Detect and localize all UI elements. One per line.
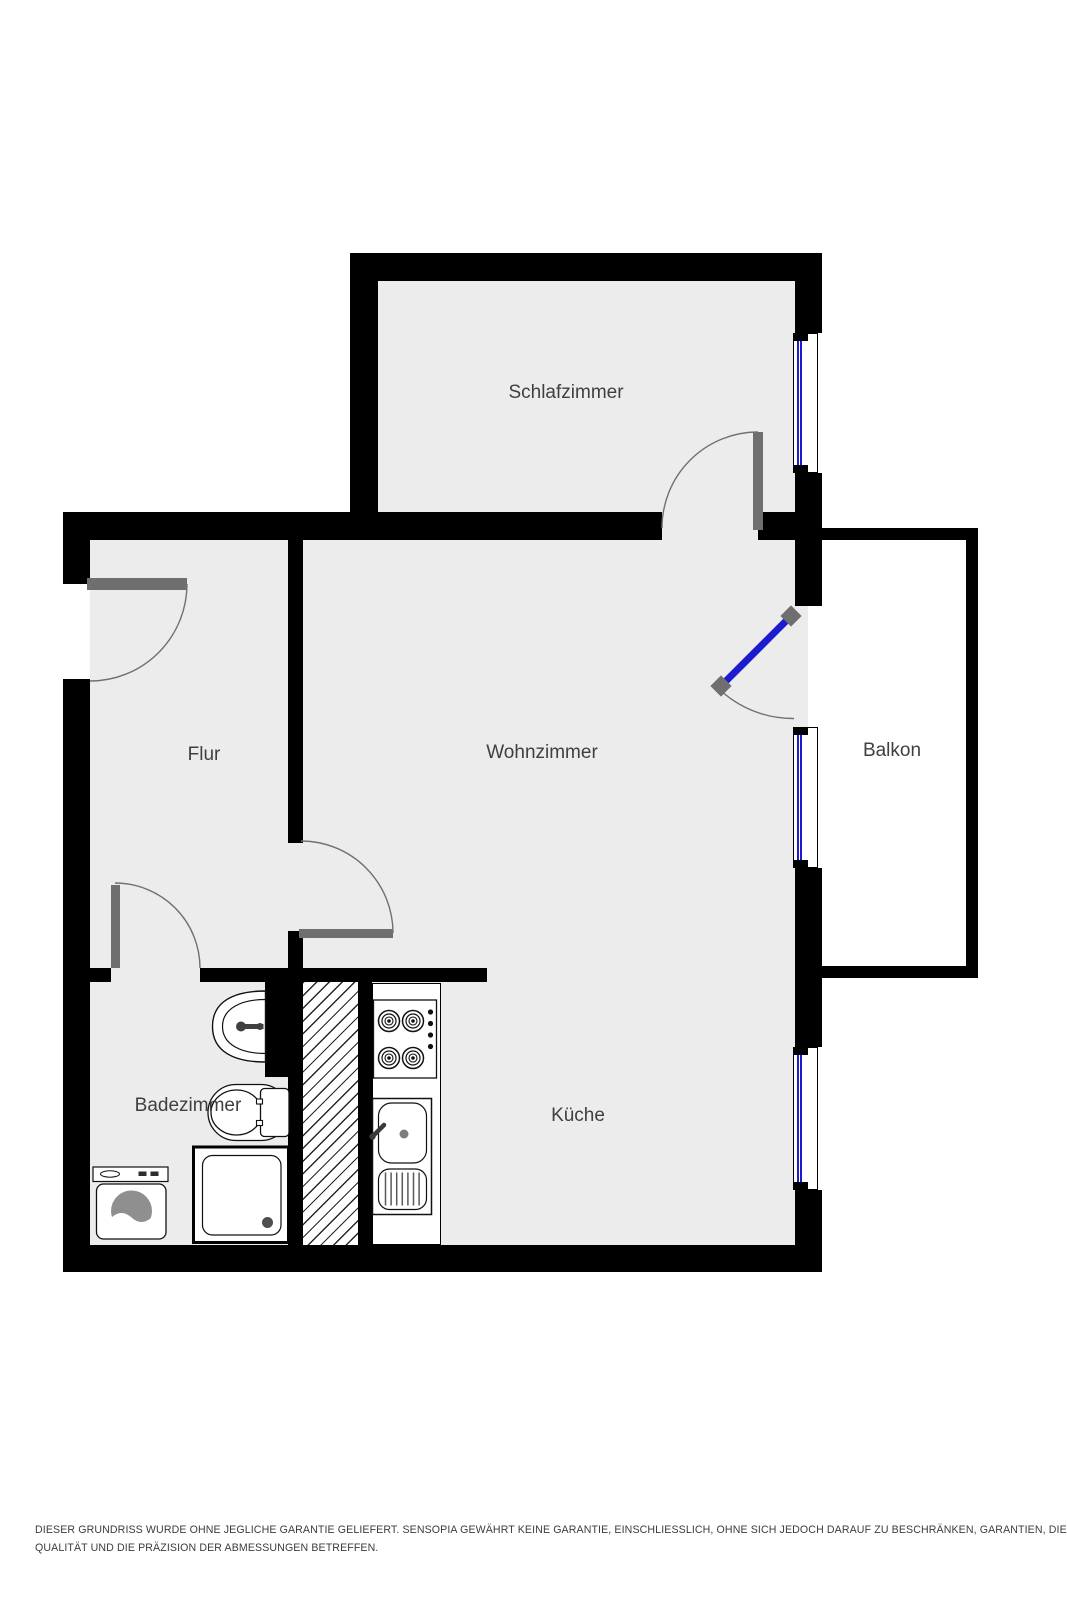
wohnzimmer-label: Wohnzimmer <box>486 742 598 764</box>
wall-right-c <box>795 868 822 1047</box>
wall-balkon-top <box>810 528 978 540</box>
flur-label: Flur <box>188 744 221 766</box>
wohnzimmer-flur-door-leaf <box>299 929 393 938</box>
wall-left-a <box>63 512 90 584</box>
kitchen-counter <box>372 983 441 1245</box>
wall-shaft-kueche <box>358 982 372 1245</box>
wall-balkon-bottom <box>810 966 978 978</box>
schlafzimmer-window <box>793 333 818 473</box>
kueche-label: Küche <box>551 1105 605 1127</box>
disclaimer-line-1: DIESER GRUNDRISS WURDE OHNE JEGLICHE GAR… <box>35 1521 1067 1539</box>
balkon-label: Balkon <box>863 740 921 762</box>
schlafzimmer-door-leaf <box>753 432 763 530</box>
wall-flur-wohnzimmer-a <box>288 540 303 843</box>
kueche-window-glass <box>797 1055 802 1182</box>
wohnzimmer-window-glass <box>797 735 802 860</box>
badezimmer-door-leaf <box>111 885 120 968</box>
wall-left-b <box>63 679 90 1272</box>
schlafzimmer-floor <box>378 281 795 540</box>
duct-shaft <box>303 982 358 1245</box>
wall-right-a <box>795 253 822 333</box>
entrance-door-leaf <box>87 578 187 590</box>
schlafzimmer-window-glass <box>797 341 802 465</box>
disclaimer: DIESER GRUNDRISS WURDE OHNE JEGLICHE GAR… <box>35 1521 1067 1557</box>
wall-schlafzimmer-top <box>350 253 822 281</box>
wall-bottom <box>63 1245 822 1272</box>
wall-bad-pilaster <box>265 982 288 1077</box>
main-floor <box>90 512 808 1245</box>
wall-bad-shaft <box>288 982 303 1245</box>
wall-top-left <box>63 512 350 540</box>
floor-plan: Schlafzimmer Flur Wohnzimmer Balkon Bade… <box>0 0 1067 1600</box>
disclaimer-line-2: QUALITÄT UND DIE PRÄZISION DER ABMESSUNG… <box>35 1539 1067 1557</box>
schlafzimmer-label: Schlafzimmer <box>508 382 623 404</box>
kueche-window <box>793 1047 818 1190</box>
wall-top-mid <box>378 512 662 540</box>
wohnzimmer-window <box>793 727 818 868</box>
wall-balkon-right <box>966 528 978 978</box>
wall-bad-kueche-top <box>200 968 487 982</box>
wall-bad-top-stub <box>90 968 111 982</box>
badezimmer-label: Badezimmer <box>135 1095 242 1117</box>
wall-schlafzimmer-left <box>350 253 378 540</box>
